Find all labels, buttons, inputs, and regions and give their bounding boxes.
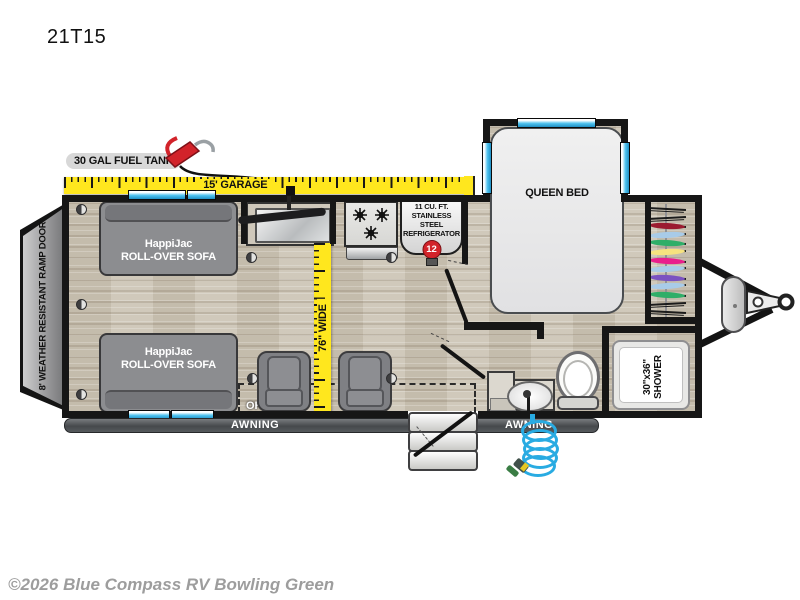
hanger-item	[648, 307, 686, 317]
window	[128, 190, 186, 200]
interior-wall	[645, 202, 651, 323]
shower-stall: 30"x36" SHOWER	[612, 340, 690, 410]
sofa-label-line2: ROLL-OVER SOFA	[101, 251, 236, 264]
chair-left	[257, 351, 311, 412]
window	[517, 118, 596, 128]
awning-bar: AWNING AWNING	[64, 418, 599, 433]
sofa-backrest	[105, 390, 232, 409]
propane-tank-icon	[721, 276, 746, 333]
exterior-wall-top	[628, 195, 702, 202]
fuel-fill-port	[286, 186, 295, 195]
fridge-label-line3: REFRIGERATOR	[402, 229, 461, 238]
interior-wall	[645, 317, 695, 324]
wall-mount-dot	[76, 389, 87, 400]
rollover-sofa-top: HappiJac ROLL-OVER SOFA	[99, 201, 238, 276]
fridge-label-line1: 11 CU. FT.	[402, 202, 461, 211]
fridge-label-line2: STAINLESS STEEL	[402, 211, 461, 229]
twelve-volt-badge-icon: 12	[422, 240, 441, 259]
exterior-wall-left	[62, 195, 69, 418]
chair-right	[338, 351, 392, 412]
toilet-tank	[557, 396, 599, 410]
interior-wall	[330, 202, 336, 244]
interior-wall	[602, 326, 609, 411]
queen-bed-label: QUEEN BED	[492, 187, 622, 199]
sofa-label-line1: HappiJac	[101, 346, 236, 359]
exterior-wall-bottom	[62, 411, 408, 418]
three-burner-icon	[346, 203, 396, 245]
queen-bed: QUEEN BED	[490, 127, 624, 314]
toilet-bowl	[563, 360, 593, 398]
sofa-label-line2: ROLL-OVER SOFA	[101, 359, 236, 372]
wall-mount-dot	[246, 252, 257, 263]
width-tape-ruler: 76" WIDE	[314, 243, 331, 413]
interior-wall	[602, 326, 702, 333]
sofa-label-line1: HappiJac	[101, 238, 236, 251]
garage-tape-ruler: 15' GARAGE	[64, 177, 472, 194]
wall-mount-dot	[386, 252, 397, 263]
window	[620, 142, 630, 194]
vanity-faucet-knob	[523, 390, 531, 398]
wall-mount-dot	[386, 373, 397, 384]
wall-mount-dot	[247, 373, 258, 384]
sofa-backrest	[105, 205, 232, 222]
awning-label-left: AWNING	[231, 419, 279, 431]
window	[482, 142, 492, 194]
tape-end-hook	[464, 176, 475, 196]
exterior-wall-right	[695, 195, 702, 418]
page-title: 21T15	[47, 26, 106, 49]
exterior-wall-bottom	[478, 411, 702, 418]
interior-wall	[537, 330, 544, 339]
shower-label-line2: SHOWER	[653, 355, 664, 399]
ramp-door: 8' WEATHER RESISTANT RAMP DOOR	[18, 198, 68, 414]
wall-mount-dot	[76, 299, 87, 310]
width-tape-label: 76" WIDE	[317, 299, 329, 357]
watermark: ©2026 Blue Compass RV Bowling Green	[8, 575, 334, 595]
rollover-sofa-bottom: HappiJac ROLL-OVER SOFA	[99, 333, 238, 413]
interior-wall	[464, 322, 544, 330]
entry-steps-icon	[408, 414, 478, 471]
refrigerator: 11 CU. FT. STAINLESS STEEL REFRIGERATOR …	[400, 196, 463, 255]
interior-wall	[462, 202, 468, 264]
exterior-wall-top	[62, 195, 483, 202]
ramp-door-label: 8' WEATHER RESISTANT RAMP DOOR	[38, 222, 49, 391]
tongue-coupler-icon	[744, 284, 796, 320]
fridge-vent-icon	[426, 258, 438, 266]
shower-label-line1: 30"x36"	[642, 355, 653, 399]
wall-mount-dot	[76, 204, 87, 215]
stove	[344, 201, 398, 247]
window	[187, 190, 216, 200]
kitchen-faucet-stem	[287, 196, 291, 210]
floorplan-canvas: 21T15 30 GAL FUEL TANK 15' GARAGE 8' WEA…	[0, 0, 800, 600]
closet-hangers	[648, 205, 686, 323]
